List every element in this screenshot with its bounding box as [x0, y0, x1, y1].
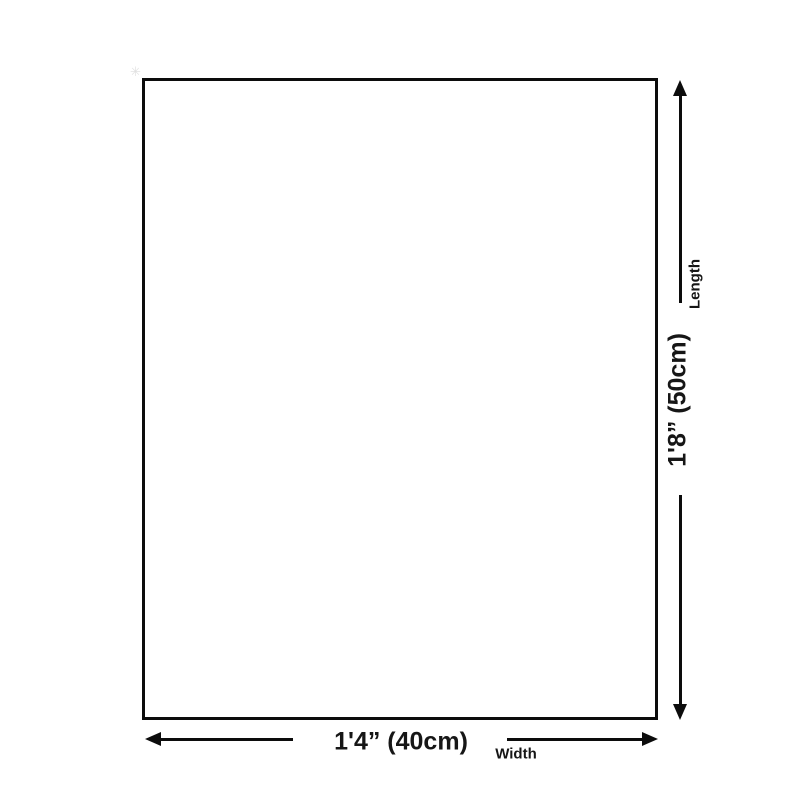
width-value: 1'4” (40cm): [334, 728, 468, 757]
width-arrow-shaft-right: [507, 738, 643, 741]
width-label: Width: [495, 746, 537, 763]
sparkle-artifact-icon: ✳: [130, 64, 141, 80]
product-outline: [142, 78, 658, 720]
arrow-down-icon: [673, 704, 687, 720]
length-value: 1'8” (50cm): [664, 333, 693, 467]
length-label: Length: [687, 259, 704, 309]
length-arrow-shaft-bottom: [679, 495, 682, 706]
length-arrow-shaft-top: [679, 94, 682, 303]
dimension-diagram: ✳ Length 1'8” (50cm) 1'4” (40cm) Width: [0, 0, 800, 800]
arrow-right-icon: [642, 732, 658, 746]
width-arrow-shaft-left: [159, 738, 293, 741]
